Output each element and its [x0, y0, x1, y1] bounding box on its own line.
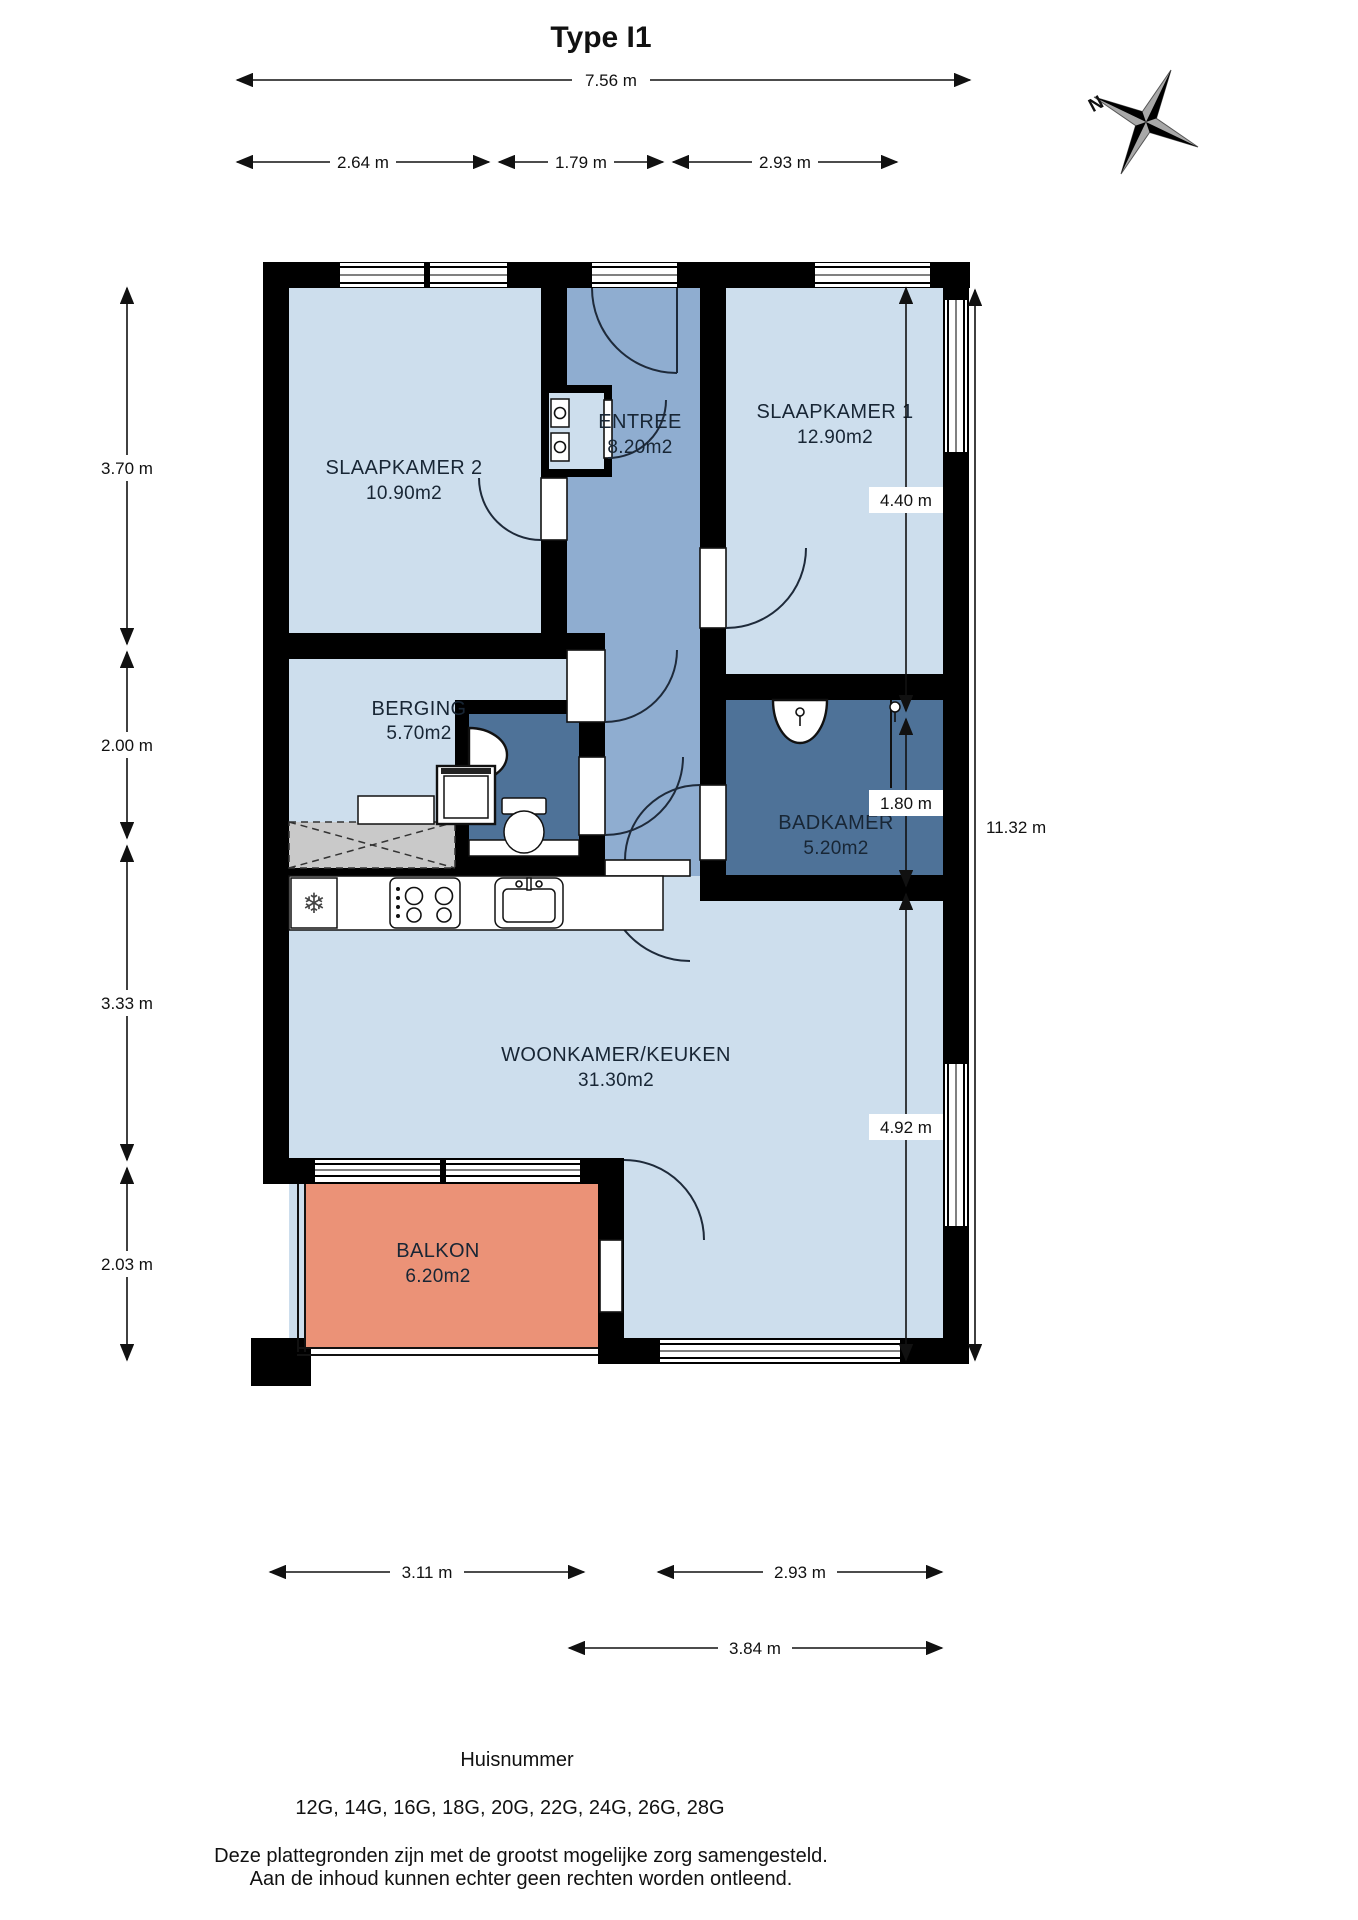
window-woonkamer-right	[945, 1064, 967, 1226]
footer-block: Huisnummer 12G, 14G, 16G, 18G, 20G, 22G,…	[214, 1749, 828, 1890]
dim-right-2: 1.80 m	[880, 794, 932, 813]
floor-plan: ❄	[251, 262, 970, 1386]
counter-icon	[358, 796, 434, 824]
page-title: Type I1	[550, 21, 651, 54]
huisnummer-list: 12G, 14G, 16G, 18G, 20G, 22G, 24G, 26G, …	[295, 1797, 724, 1819]
dim-right-1: 4.40 m	[880, 491, 932, 510]
dim-bottom-1: 3.11 m	[402, 1563, 453, 1582]
label-woonkamer: WOONKAMER/KEUKEN	[501, 1044, 731, 1066]
area-woonkamer: 31.30m2	[578, 1070, 654, 1091]
window-slaapkamer2-a	[340, 263, 424, 287]
window-woonkamer-bottom	[660, 1340, 900, 1362]
area-badkamer: 5.20m2	[803, 838, 868, 859]
area-slaapkamer2: 10.90m2	[366, 483, 442, 504]
dim-bottom-2: 2.93 m	[774, 1563, 826, 1582]
floorplan-page: Type I1 N	[0, 0, 1358, 1920]
window-slaapkamer1-right	[945, 300, 967, 452]
washing-machine-panel	[441, 768, 491, 774]
stove-icon	[390, 878, 460, 928]
shower-icon	[890, 702, 900, 712]
wall-left	[263, 262, 289, 1184]
freezer-glyph: ❄	[302, 888, 325, 919]
window-balkon-a	[315, 1160, 440, 1182]
window-balkon-b	[446, 1160, 580, 1182]
room-slaapkamer-1	[726, 288, 943, 674]
area-berging: 5.70m2	[386, 723, 451, 744]
dim-left-2: 2.00 m	[101, 736, 153, 755]
disclaimer-line-1: Deze plattegronden zijn met de grootst m…	[214, 1845, 828, 1867]
kitchen-counter	[289, 876, 663, 930]
dim-top-seg2: 1.79 m	[555, 153, 607, 172]
dim-left-3: 3.33 m	[101, 994, 153, 1013]
wall-sk2-berging	[263, 633, 567, 659]
label-berging: BERGING	[371, 698, 466, 720]
compass-rose: N	[1085, 70, 1198, 174]
floorplan-canvas: Type I1 N	[0, 0, 1358, 1920]
disclaimer-line-2: Aan de inhoud kunnen echter geen rechten…	[250, 1868, 793, 1890]
dim-right-3: 4.92 m	[880, 1118, 932, 1137]
compass-north-label: N	[1085, 92, 1107, 117]
window-entree	[592, 263, 677, 287]
kitchen-sink-icon	[495, 878, 563, 928]
dim-top-seg1: 2.64 m	[337, 153, 389, 172]
area-slaapkamer1: 12.90m2	[797, 427, 873, 448]
window-slaapkamer2-b	[430, 263, 507, 287]
washing-machine-door	[444, 776, 488, 818]
area-entree: 8.20m2	[607, 437, 672, 458]
floor-hatch	[289, 822, 455, 868]
dim-left-1: 3.70 m	[101, 459, 153, 478]
label-entree: ENTREE	[598, 411, 682, 433]
label-slaapkamer1: SLAAPKAMER 1	[756, 401, 913, 423]
dim-bottom-3: 3.84 m	[729, 1639, 781, 1658]
label-slaapkamer2: SLAAPKAMER 2	[325, 457, 482, 479]
window-slaapkamer1-top	[815, 263, 930, 287]
dim-top-seg3: 2.93 m	[759, 153, 811, 172]
toilet-bowl-icon	[504, 811, 544, 853]
huisnummer-label: Huisnummer	[460, 1749, 574, 1771]
label-balkon: BALKON	[396, 1240, 480, 1262]
dim-right-total: 11.32 m	[986, 818, 1046, 837]
dim-left-4: 2.03 m	[101, 1255, 153, 1274]
dim-top-total: 7.56 m	[585, 71, 637, 90]
wall-balkon-stub	[251, 1338, 311, 1386]
area-balkon: 6.20m2	[405, 1266, 470, 1287]
kitchen: ❄	[289, 876, 663, 930]
